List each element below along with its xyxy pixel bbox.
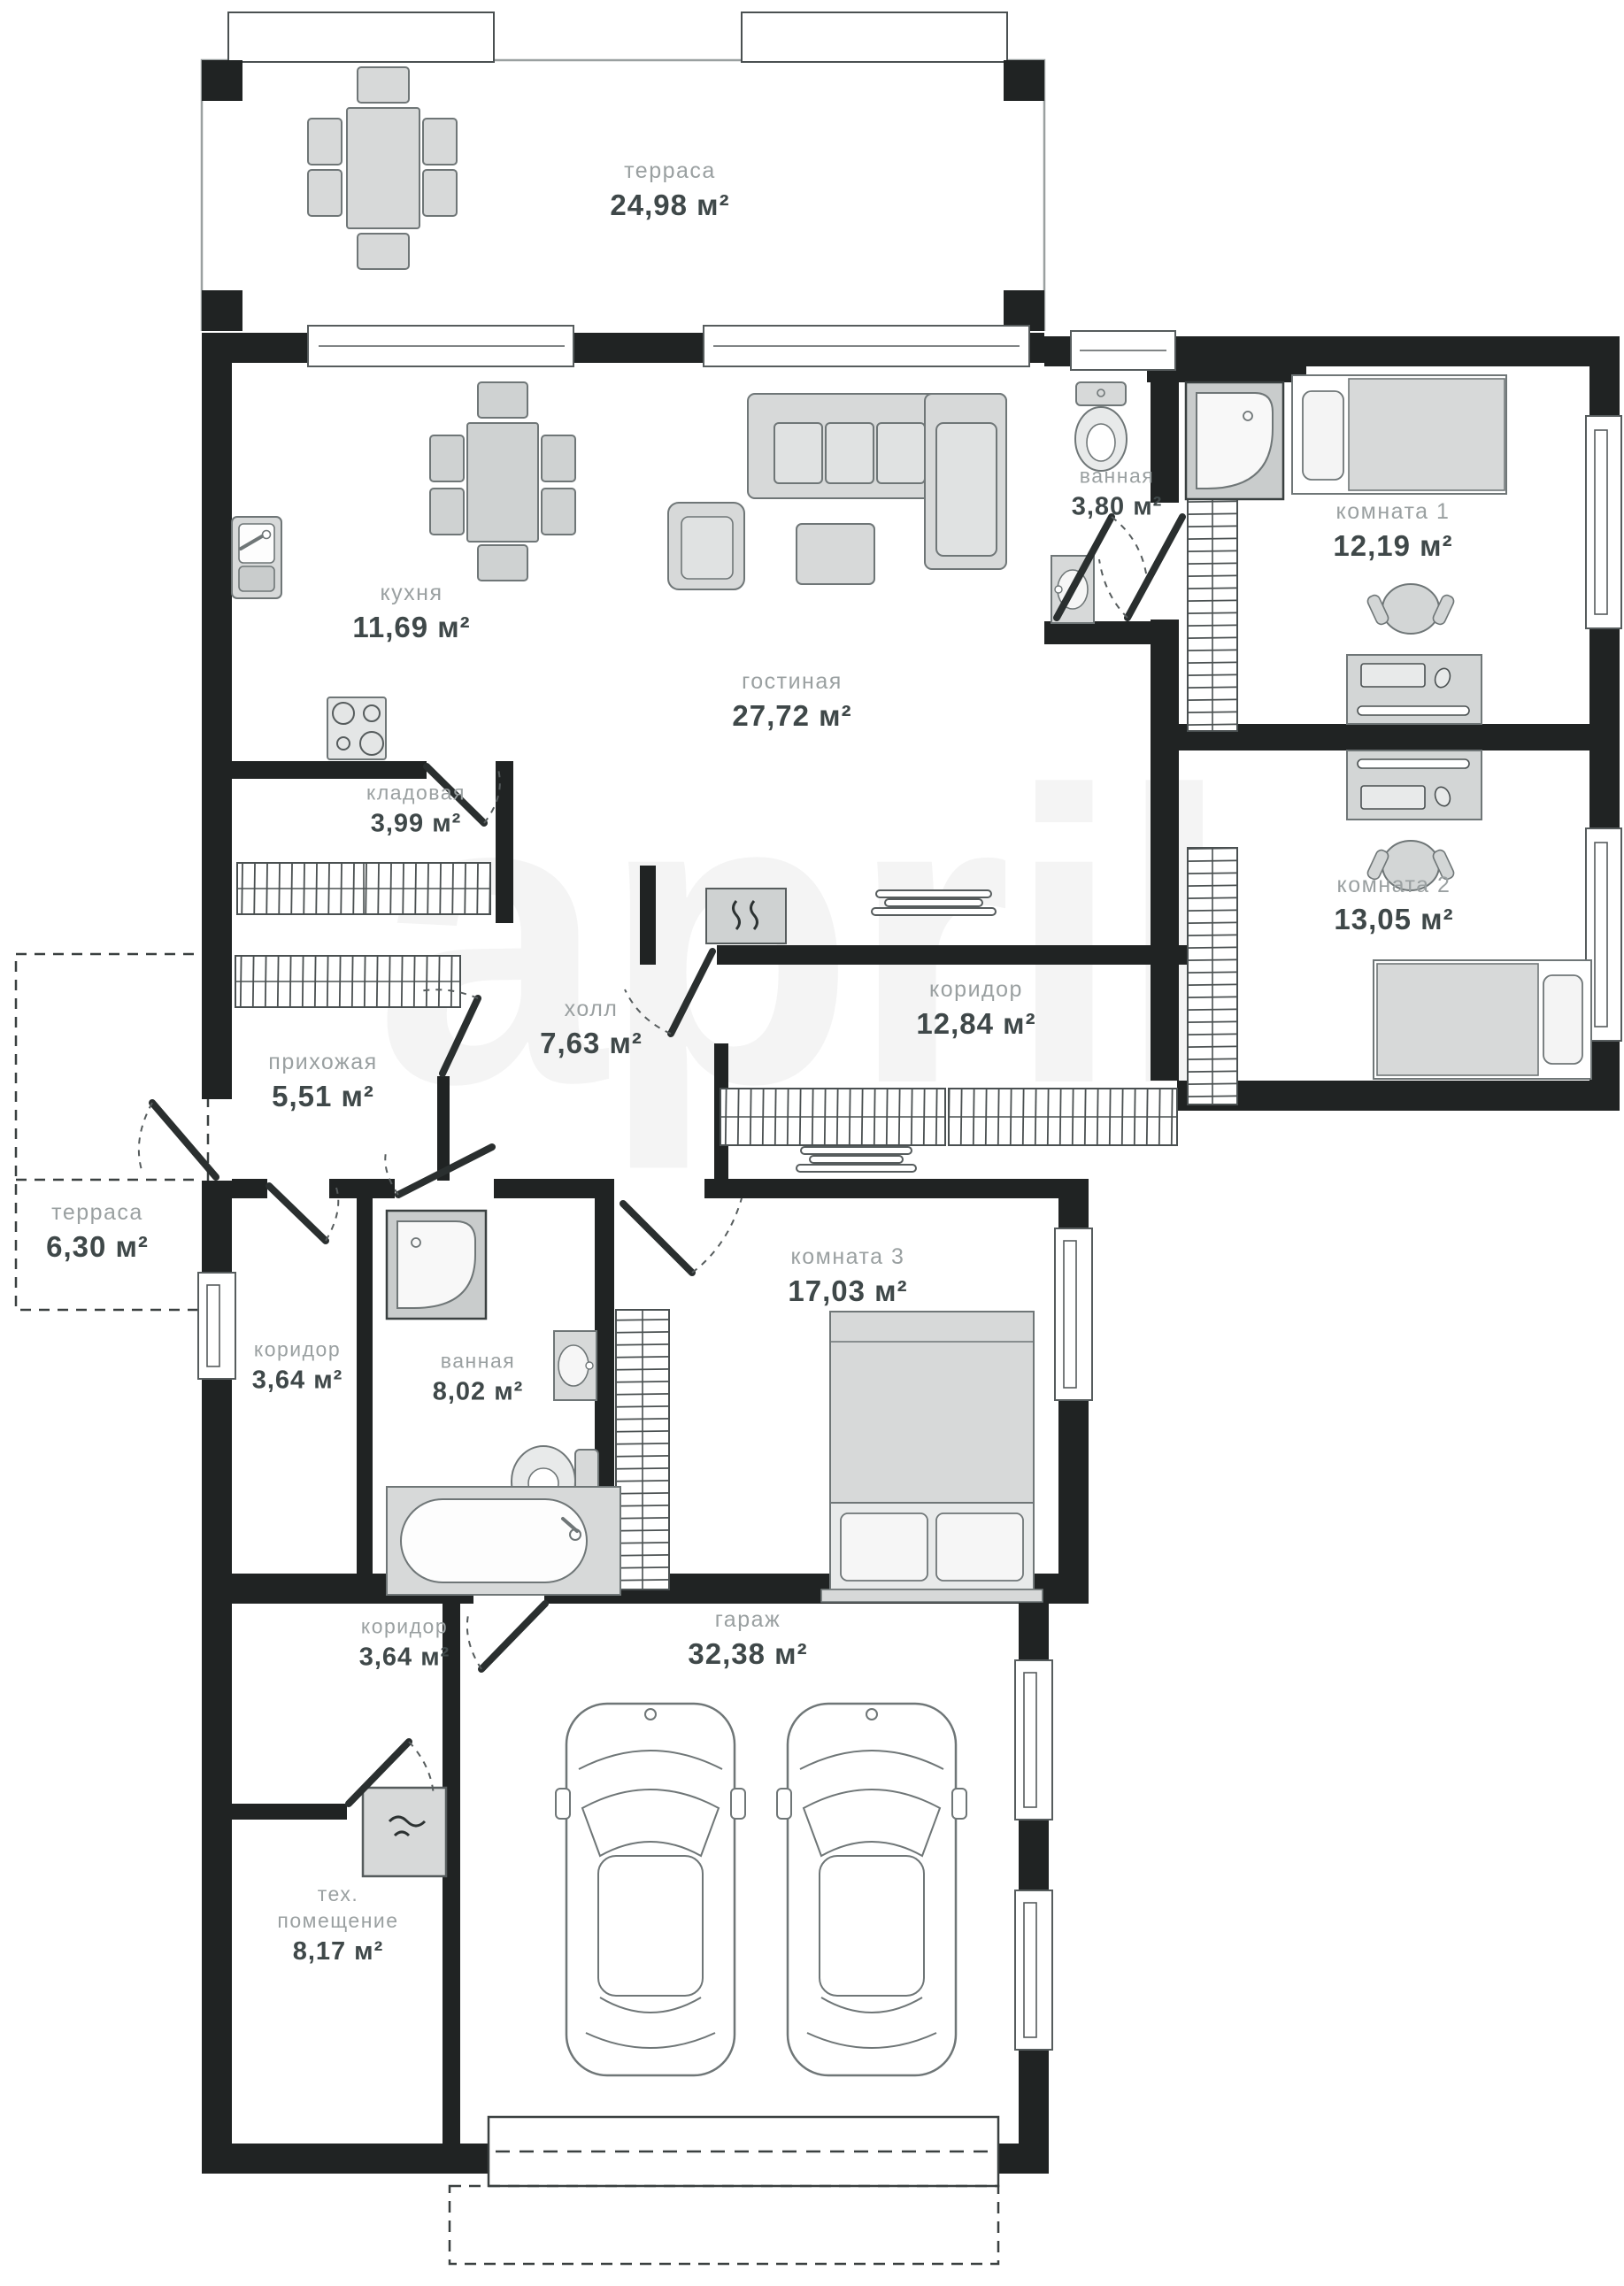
- terrace-step: [228, 12, 494, 62]
- fireplace: [706, 889, 786, 943]
- floor-plan-drawing: [0, 0, 1624, 2286]
- boiler-icon: [363, 1788, 446, 1876]
- floor-plan-page: april: [0, 0, 1624, 2286]
- room-label-pantry: кладовая 3,99 м²: [366, 781, 466, 842]
- room-label-room-2: комната 2 13,05 м²: [1334, 871, 1453, 938]
- room-label-corridor-garage: коридор 3,64 м²: [359, 1614, 450, 1675]
- room-label-kitchen: кухня 11,69 м²: [352, 579, 470, 646]
- room-label-entry: прихожая 5,51 м²: [268, 1048, 377, 1115]
- toilet-icon: [1075, 382, 1127, 471]
- tv-console: [872, 890, 996, 915]
- room-label-corridor-small: коридор 3,64 м²: [252, 1337, 343, 1398]
- room-label-bathroom-1: ванная 3,80 м²: [1072, 464, 1163, 525]
- shower-icon: [1186, 382, 1283, 499]
- office-chair-1: [1366, 584, 1455, 634]
- desk-1: [1347, 655, 1482, 724]
- driveway-apron: [450, 2186, 998, 2264]
- room-label-tech: тех. помещение 8,17 м²: [254, 1882, 422, 1968]
- room-label-hall: холл 7,63 м²: [540, 995, 643, 1062]
- coffee-table: [797, 524, 874, 584]
- car-1: [556, 1704, 745, 2075]
- room-label-room-1: комната 1 12,19 м²: [1333, 497, 1452, 565]
- sink-2-icon: [554, 1331, 596, 1400]
- desk-2: [1347, 750, 1482, 820]
- shower-2-icon: [387, 1211, 486, 1319]
- room-label-living: гостиная 27,72 м²: [732, 667, 851, 735]
- kitchen-dining-set: [430, 382, 575, 581]
- room-label-terrace-left: терраса 6,30 м²: [46, 1198, 149, 1266]
- console-shelf: [797, 1147, 916, 1172]
- bed-single-1: [1292, 375, 1506, 494]
- room-label-corridor-main: коридор 12,84 м²: [916, 975, 1035, 1043]
- room-label-room-3: комната 3 17,03 м²: [788, 1243, 907, 1310]
- sofa: [748, 394, 1006, 569]
- car-2: [777, 1704, 966, 2075]
- room-label-terrace-top: терраса 24,98 м²: [610, 157, 729, 224]
- terrace-step: [742, 12, 1007, 62]
- room-label-bathroom-2: ванная 8,02 м²: [433, 1349, 524, 1410]
- room-label-garage: гараж 32,38 м²: [688, 1605, 807, 1673]
- terrace-dining-set: [308, 67, 457, 269]
- bed-single-2: [1374, 960, 1591, 1079]
- bed-double: [821, 1312, 1043, 1602]
- garage-door: [450, 2117, 998, 2264]
- kitchen-sink: [232, 517, 281, 598]
- stove: [327, 697, 386, 759]
- bathtub-icon: [387, 1487, 620, 1595]
- armchair: [668, 503, 744, 589]
